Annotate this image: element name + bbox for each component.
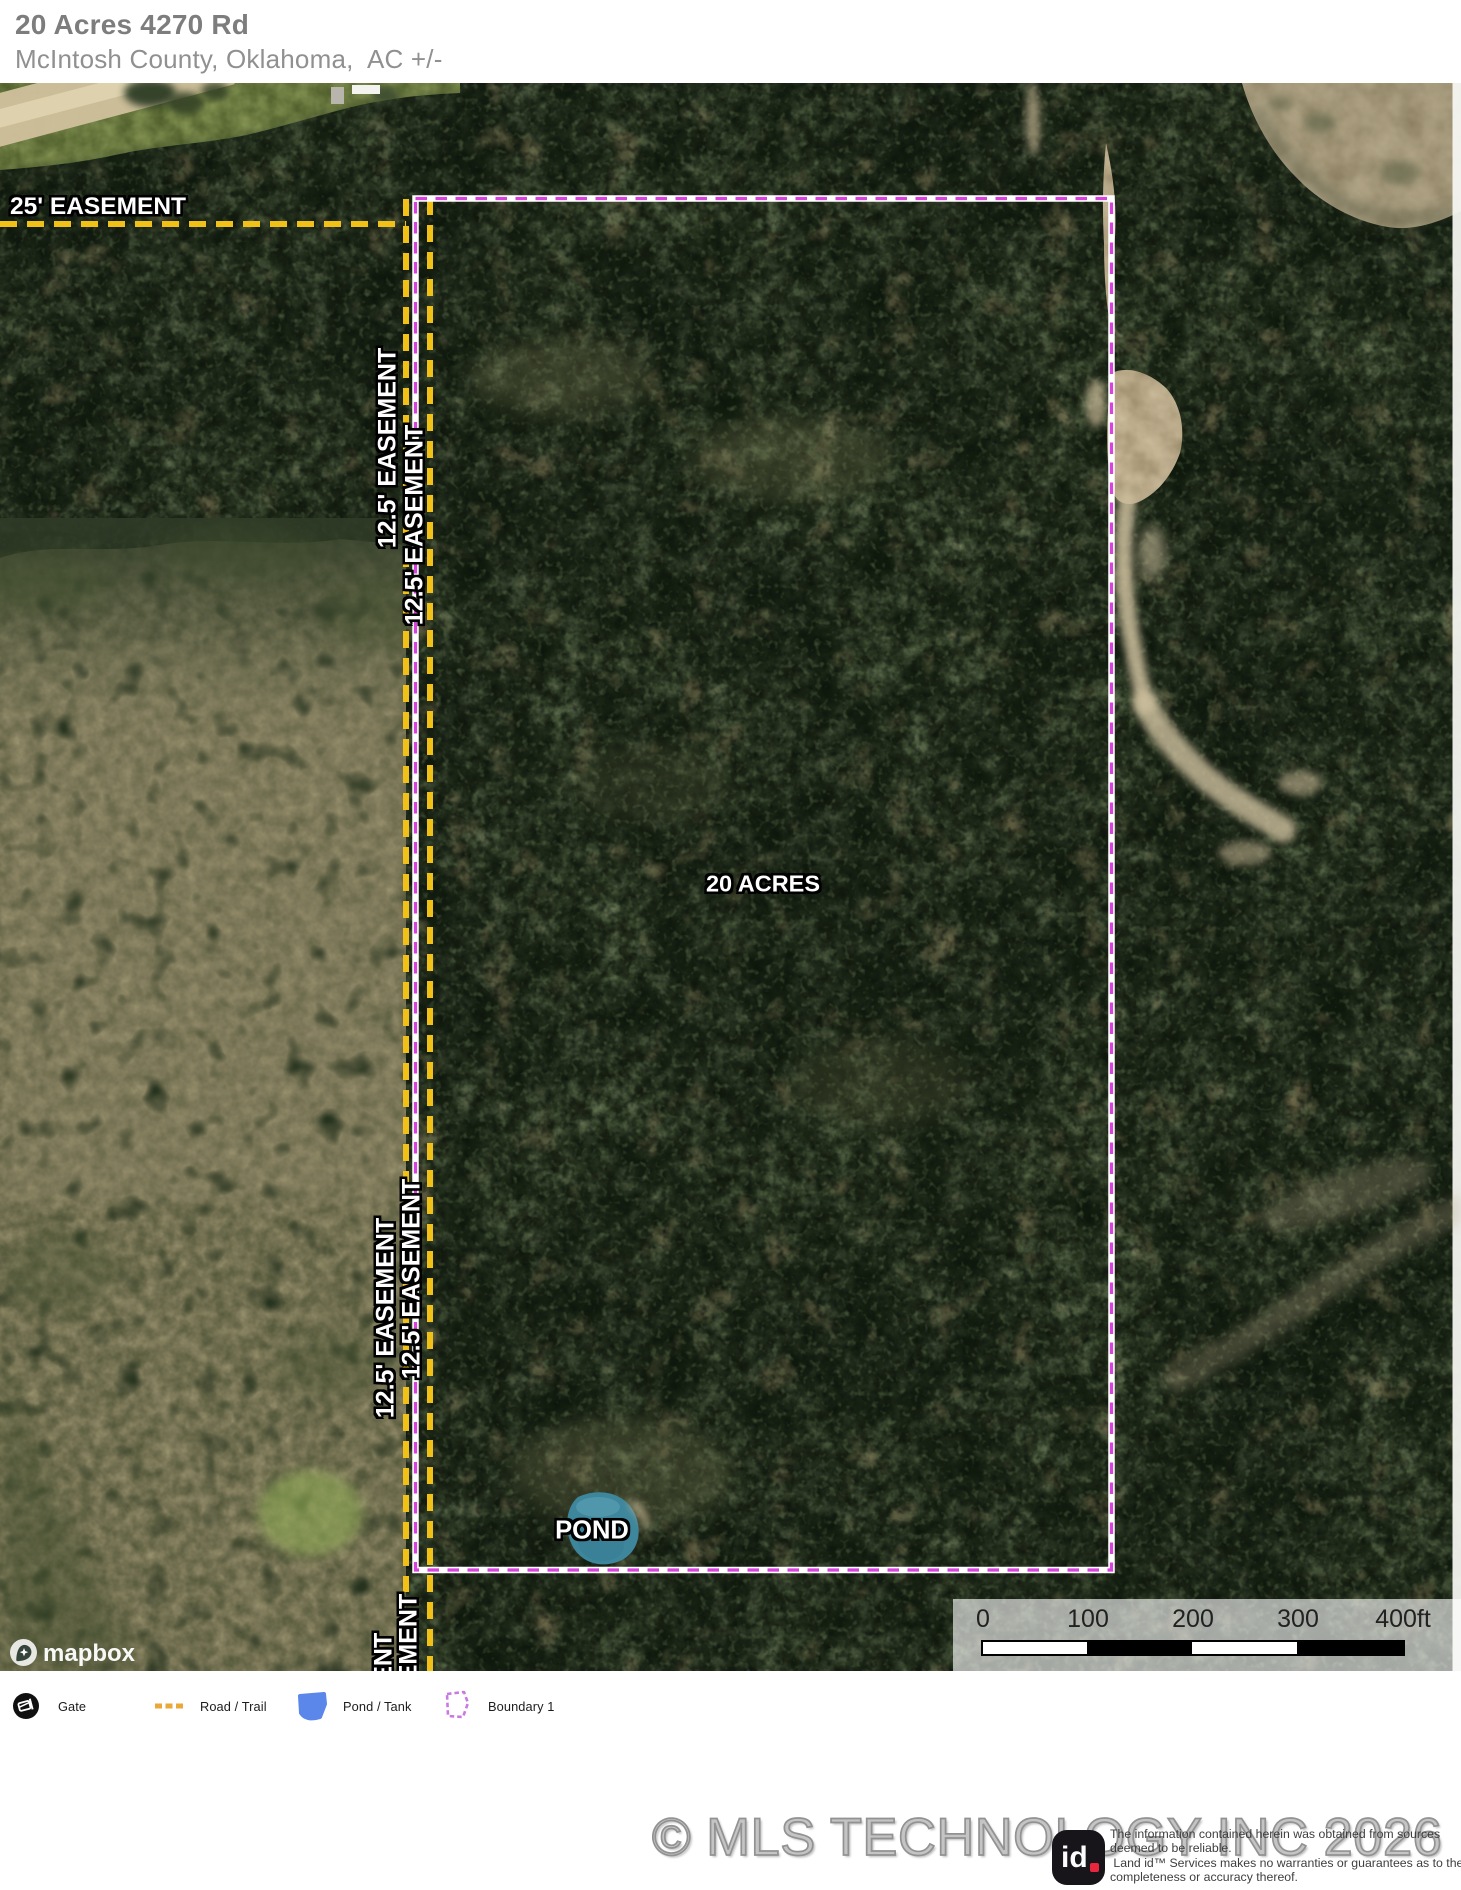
svg-text:mapbox: mapbox [43, 1640, 136, 1667]
